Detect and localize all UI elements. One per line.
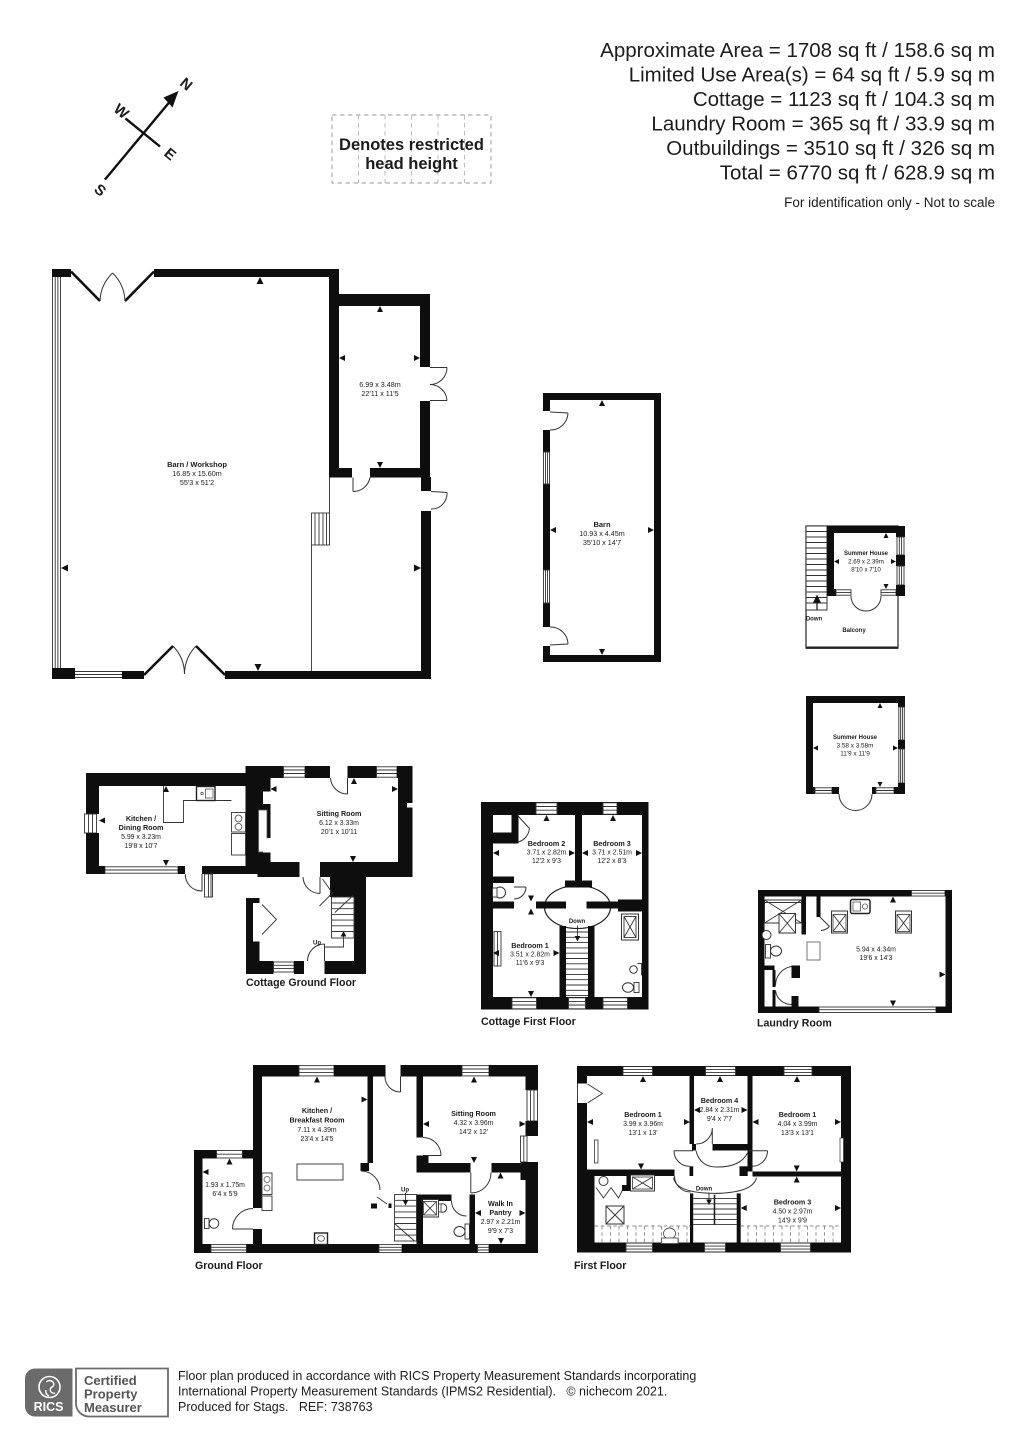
svg-text:head height: head height: [365, 155, 458, 173]
svg-text:Summer House: Summer House: [844, 551, 889, 557]
svg-text:Ground Floor: Ground Floor: [195, 1260, 263, 1272]
svg-text:Down: Down: [696, 1187, 713, 1193]
svg-text:1.93 x 1.75m: 1.93 x 1.75m: [205, 1182, 245, 1189]
svg-text:3.99 x 3.96m: 3.99 x 3.96m: [623, 1121, 663, 1128]
svg-text:Bedroom 1: Bedroom 1: [624, 1110, 662, 1119]
svg-text:International Property Measure: International Property Measurement Stand…: [178, 1385, 667, 1399]
svg-text:Barn: Barn: [593, 520, 611, 529]
svg-text:Kitchen /: Kitchen /: [126, 814, 156, 823]
svg-text:Cottage Ground Floor: Cottage Ground Floor: [246, 977, 356, 989]
svg-text:2.84 x 2.31m: 2.84 x 2.31m: [700, 1107, 740, 1114]
svg-text:Kitchen /: Kitchen /: [302, 1106, 332, 1115]
svg-text:Approximate Area = 1708 sq ft: Approximate Area = 1708 sq ft / 158.6 sq…: [600, 39, 995, 62]
svg-text:4.50 x 2.97m: 4.50 x 2.97m: [773, 1209, 813, 1216]
svg-text:23'4 x 14'5: 23'4 x 14'5: [301, 1136, 334, 1143]
svg-text:Laundry Room = 365 sq ft / 33.: Laundry Room = 365 sq ft / 33.9 sq m: [651, 113, 995, 136]
svg-text:22'11 x 11'5: 22'11 x 11'5: [361, 389, 398, 398]
svg-text:4.04 x 3.99m: 4.04 x 3.99m: [778, 1121, 818, 1128]
svg-text:13'3 x 13'1: 13'3 x 13'1: [781, 1130, 814, 1137]
svg-text:14'9 x 9'9: 14'9 x 9'9: [778, 1218, 807, 1225]
svg-text:4.32 x 3.96m: 4.32 x 3.96m: [454, 1120, 494, 1127]
svg-text:First Floor: First Floor: [574, 1260, 626, 1272]
svg-text:Balcony: Balcony: [842, 628, 866, 634]
svg-text:35'10 x 14'7: 35'10 x 14'7: [583, 538, 621, 547]
svg-text:Cottage First Floor: Cottage First Floor: [481, 1016, 576, 1028]
svg-text:Cottage = 1123 sq ft / 104.3 s: Cottage = 1123 sq ft / 104.3 sq m: [693, 88, 995, 111]
svg-text:5.94 x 4.34m: 5.94 x 4.34m: [856, 947, 896, 954]
svg-text:6.99 x 3.48m: 6.99 x 3.48m: [359, 380, 401, 389]
svg-text:Breakfast Room: Breakfast Room: [289, 1116, 344, 1125]
svg-text:For identification only - Not: For identification only - Not to scale: [784, 195, 995, 210]
svg-text:13'1 x 13': 13'1 x 13': [628, 1130, 657, 1137]
svg-text:11'9 x 11'9: 11'9 x 11'9: [840, 751, 870, 758]
svg-text:19'6 x 14'3: 19'6 x 14'3: [860, 955, 893, 962]
svg-text:Down: Down: [569, 919, 586, 925]
svg-text:Dining Room: Dining Room: [119, 823, 164, 832]
svg-text:Pantry: Pantry: [489, 1208, 511, 1217]
svg-text:Bedroom 3: Bedroom 3: [774, 1198, 812, 1207]
svg-text:Bedroom 2: Bedroom 2: [528, 839, 566, 848]
svg-text:9'9 x 7'3: 9'9 x 7'3: [488, 1228, 513, 1235]
svg-text:7.11 x 4.39m: 7.11 x 4.39m: [297, 1127, 337, 1134]
svg-text:12'2 x 8'3: 12'2 x 8'3: [597, 858, 626, 865]
svg-text:8'10 x 7'10: 8'10 x 7'10: [851, 567, 881, 574]
svg-text:Sitting Room: Sitting Room: [451, 1109, 496, 1118]
svg-text:Measurer: Measurer: [84, 1400, 142, 1415]
svg-text:Bedroom 4: Bedroom 4: [701, 1096, 739, 1105]
svg-text:Total = 6770 sq ft / 628.9 sq: Total = 6770 sq ft / 628.9 sq m: [720, 162, 995, 185]
svg-text:2.69 x 2.39m: 2.69 x 2.39m: [848, 559, 884, 566]
svg-text:20'1 x 10'11: 20'1 x 10'11: [321, 829, 357, 836]
svg-text:3.71 x 2.82m: 3.71 x 2.82m: [527, 850, 567, 857]
svg-text:Sitting Room: Sitting Room: [317, 809, 362, 818]
svg-text:55'3 x 51'2: 55'3 x 51'2: [180, 478, 214, 487]
svg-text:Walk In: Walk In: [488, 1199, 513, 1208]
svg-text:3.58 x 3.58m: 3.58 x 3.58m: [837, 743, 874, 750]
svg-text:Up: Up: [313, 941, 321, 947]
svg-text:Produced for Stags. REF: 738: Produced for Stags. REF: 738763: [178, 1400, 373, 1414]
svg-text:14'2 x 12': 14'2 x 12': [459, 1129, 488, 1136]
svg-text:Outbuildings = 3510 sq ft / 32: Outbuildings = 3510 sq ft / 326 sq m: [666, 137, 995, 160]
svg-text:Floor plan produced in accorda: Floor plan produced in accordance with R…: [178, 1369, 696, 1383]
svg-text:Bedroom 1: Bedroom 1: [779, 1110, 817, 1119]
svg-text:Summer House: Summer House: [833, 735, 878, 741]
svg-text:9'4 x 7'7: 9'4 x 7'7: [707, 1116, 732, 1123]
svg-text:12'2 x 9'3: 12'2 x 9'3: [532, 858, 561, 865]
svg-text:16.85 x 15.60m: 16.85 x 15.60m: [172, 469, 222, 478]
svg-text:3.51 x 2.82m: 3.51 x 2.82m: [510, 952, 550, 959]
svg-text:Down: Down: [806, 617, 823, 623]
svg-text:Limited Use Area(s) = 64 sq ft: Limited Use Area(s) = 64 sq ft / 5.9 sq …: [629, 64, 995, 87]
svg-text:Bedroom 3: Bedroom 3: [593, 839, 631, 848]
svg-text:Up: Up: [401, 1188, 409, 1194]
svg-text:5.99 x 3.23m: 5.99 x 3.23m: [121, 834, 161, 841]
svg-text:Barn / Workshop: Barn / Workshop: [167, 460, 227, 469]
svg-text:6'4 x 5'9: 6'4 x 5'9: [212, 1191, 237, 1198]
svg-text:Denotes restricted: Denotes restricted: [339, 136, 484, 154]
svg-text:6.12 x 3.33m: 6.12 x 3.33m: [319, 820, 359, 827]
svg-text:2.97 x 2.21m: 2.97 x 2.21m: [481, 1219, 521, 1226]
svg-text:11'6 x 9'3: 11'6 x 9'3: [516, 960, 545, 967]
svg-text:10.93 x 4.45m: 10.93 x 4.45m: [579, 529, 625, 538]
svg-text:Laundry Room: Laundry Room: [757, 1018, 832, 1030]
svg-text:19'8 x 10'7: 19'8 x 10'7: [125, 843, 158, 850]
svg-text:3.71 x 2.51m: 3.71 x 2.51m: [592, 850, 632, 857]
svg-text:RICS: RICS: [34, 1400, 64, 1414]
svg-text:Bedroom 1: Bedroom 1: [511, 941, 549, 950]
